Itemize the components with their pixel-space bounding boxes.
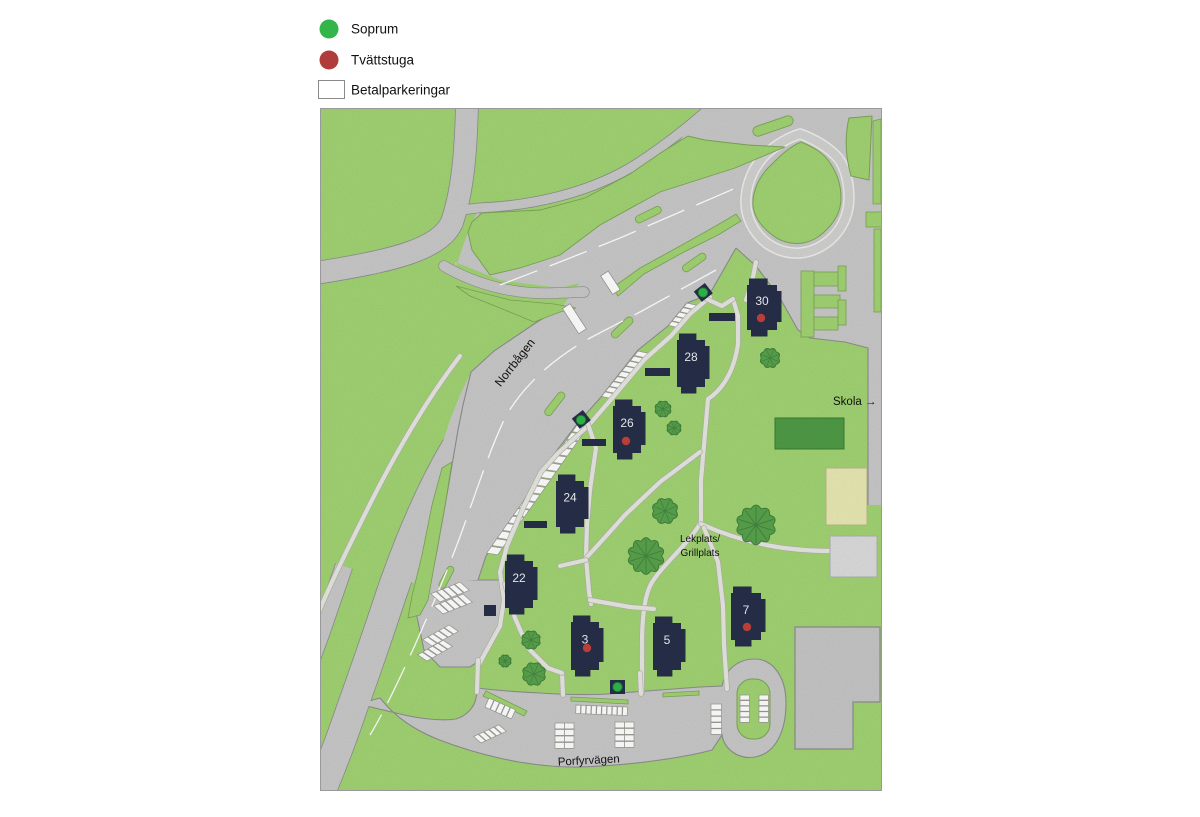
svg-text:Tvättstuga: Tvättstuga bbox=[351, 53, 415, 68]
svg-text:Betalparkeringar: Betalparkeringar bbox=[351, 83, 451, 98]
svg-text:Soprum: Soprum bbox=[351, 22, 398, 37]
